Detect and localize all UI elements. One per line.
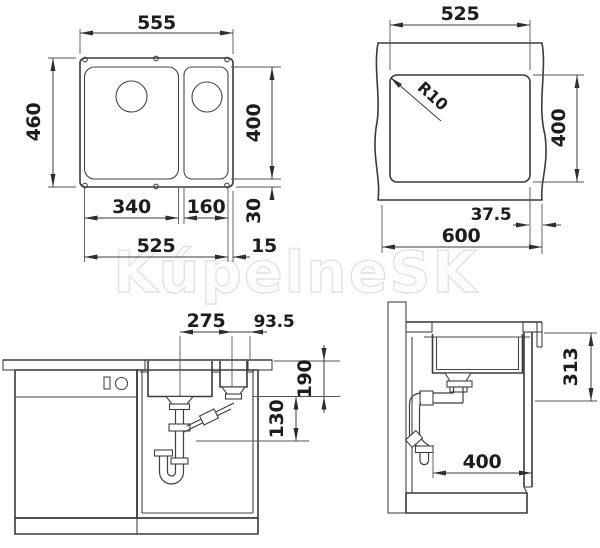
cabinet-side: [406, 332, 532, 513]
cutout-dimensions: 525 400 37.5 600: [382, 3, 584, 254]
dim-install-depth: 313: [560, 348, 582, 387]
side-dimensions: 313 400: [433, 333, 597, 478]
sink-technical-drawing: KúpelneSK 555 460: [0, 0, 600, 548]
worktop-section-right: [248, 360, 272, 370]
left-cabinet: [15, 370, 137, 518]
dim-overall-depth: 460: [23, 103, 45, 142]
dim-small-bowl-width: 160: [187, 196, 226, 218]
dim-trap-drop: 130: [266, 400, 288, 439]
dim-main-bowl-width: 340: [112, 196, 151, 218]
bowl-outer-side: [433, 334, 523, 373]
dim-bowl-depth-front: 190: [294, 360, 316, 399]
side-view: 313 400: [388, 302, 597, 513]
dim-cutout-width: 525: [441, 3, 480, 25]
small-bowl: [184, 67, 228, 179]
plinth-side: [406, 493, 527, 513]
bowl-inner-side: [437, 337, 519, 370]
cabinet-control-switch: [104, 377, 110, 389]
dim-corner-radius: R10: [414, 78, 452, 115]
dim-drain-to-edge: 93.5: [254, 312, 295, 332]
cabinet-control-knob: [116, 378, 128, 390]
dim-worktop-width: 600: [442, 225, 481, 247]
cutout-view: R10 525 400 37.5 600: [375, 3, 584, 254]
sink-outline: [80, 58, 233, 187]
dim-bowls-total-width: 525: [137, 235, 176, 257]
cutout-outline: [390, 75, 530, 182]
plan-view: 555 460 400 30 340 160: [23, 12, 281, 262]
dim-bowl-length-side: 400: [463, 451, 502, 473]
small-drain-assembly: [184, 387, 245, 432]
front-view: 275 93.5 190 130: [3, 310, 340, 534]
cabinets-front: [15, 370, 258, 534]
plan-dimensions: 555 460 400 30 340 160: [23, 12, 281, 262]
main-bowl-drain: [116, 81, 147, 112]
main-bowl: [85, 67, 179, 179]
dim-edge-offset: 37.5: [471, 205, 512, 225]
dim-overall-width: 555: [137, 12, 176, 34]
wall-section: [388, 302, 406, 513]
main-drain-assembly: [155, 397, 194, 485]
worktop-outline: [375, 43, 546, 200]
worktop-side-left: [406, 322, 432, 332]
drawing-canvas: KúpelneSK 555 460: [0, 0, 600, 548]
dim-side-rim: 15: [251, 235, 277, 257]
dim-drain-distance: 275: [187, 310, 226, 332]
dim-bowl-depth: 400: [243, 104, 265, 143]
small-bowl-section: [220, 361, 247, 387]
fixing-holes: [83, 56, 230, 189]
small-bowl-drain: [192, 82, 222, 112]
worktop-side-right: [523, 322, 537, 332]
dim-rear-rim: 30: [243, 198, 265, 224]
worktop-section-left: [3, 360, 145, 370]
dim-cutout-depth: 400: [548, 109, 570, 148]
